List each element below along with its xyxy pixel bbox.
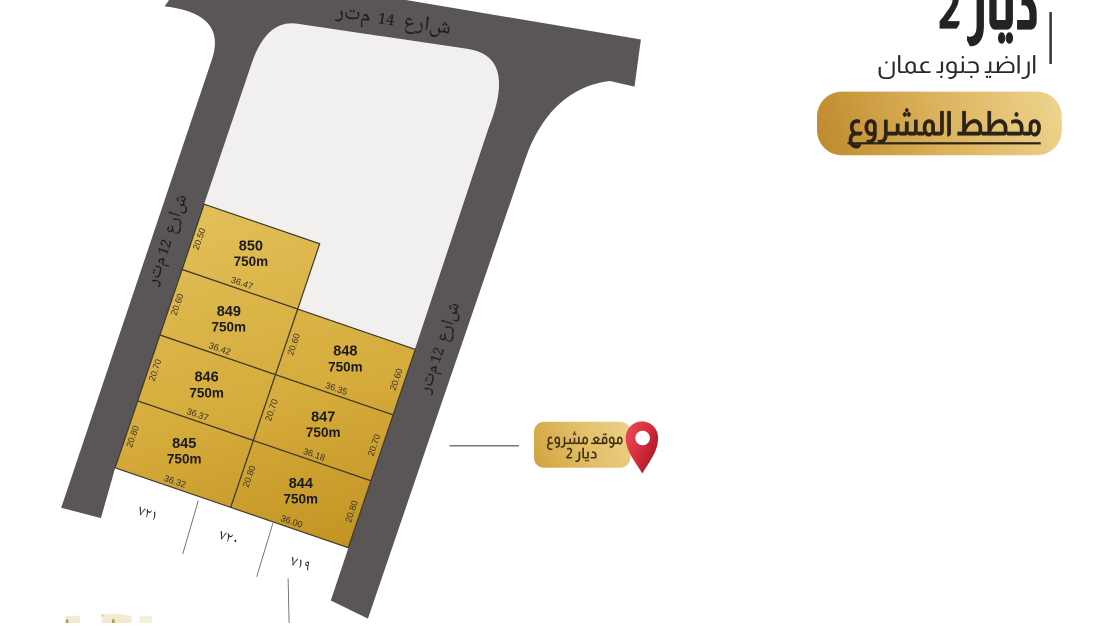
svg-text:750m: 750m [306, 425, 341, 440]
svg-text:750m: 750m [284, 492, 319, 507]
svg-text:750m: 750m [189, 385, 224, 400]
svg-text:847: 847 [311, 409, 335, 425]
svg-text:844: 844 [289, 476, 313, 492]
svg-text:848: 848 [333, 344, 357, 360]
svg-text:750m: 750m [167, 452, 202, 467]
svg-text:750m: 750m [234, 254, 269, 269]
svg-text:845: 845 [172, 436, 196, 452]
svg-text:846: 846 [194, 370, 218, 386]
svg-text:750m: 750m [328, 360, 363, 375]
svg-text:750m: 750m [212, 320, 247, 335]
svg-text:849: 849 [217, 304, 241, 320]
svg-text:850: 850 [239, 238, 263, 254]
